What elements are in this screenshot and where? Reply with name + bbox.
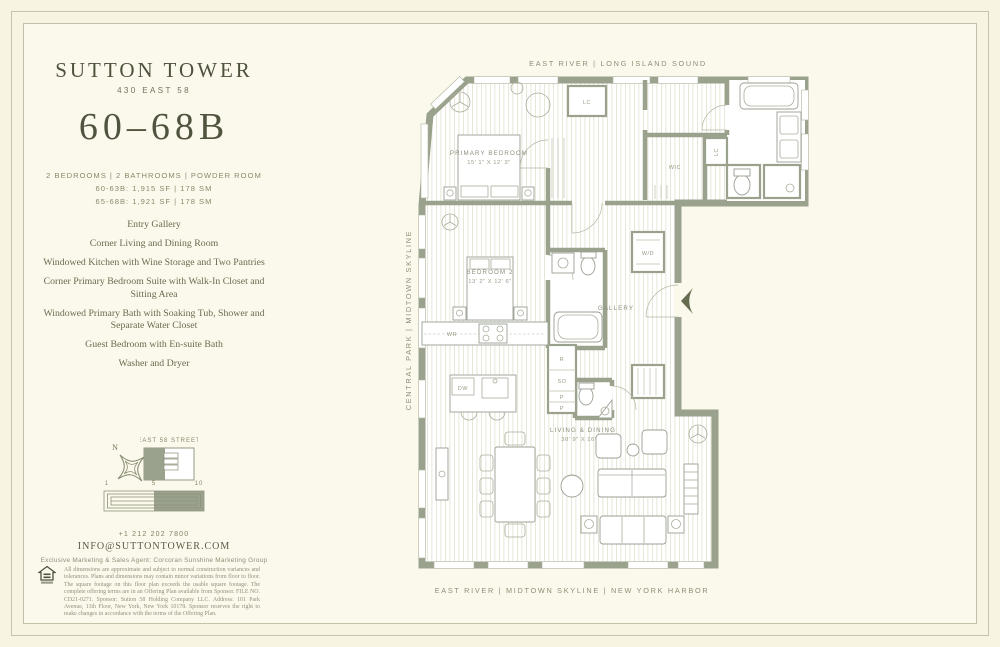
bedroom-2-dims: 13' 2" X 12' 6" [468,279,511,285]
feature-item: Corner Primary Bedroom Suite with Walk-I… [39,276,269,301]
shower-walls [764,165,800,198]
unit-config: 2 BEDROOMS | 2 BATHROOMS | POWDER ROOM [18,169,290,182]
wic-label: WIC [669,165,681,171]
scale-tick-5: 5 [152,481,156,487]
unit-area-1: 60-63B: 1,915 SF | 178 SM [18,182,290,195]
scale-tick-1: 1 [105,481,109,487]
pantry-label: P [560,406,564,412]
floor-plan: EAST RIVER | LONG ISLAND SOUND CENTRAL P… [400,50,900,605]
caption-left: CENTRAL PARK | MIDTOWN SKYLINE [404,230,413,410]
linen-closet-label: LC [583,100,591,106]
feature-item: Entry Gallery [39,219,269,232]
caption-top: EAST RIVER | LONG ISLAND SOUND [529,59,707,68]
refrigerator-label: R [560,357,565,363]
toilet-icon [579,387,593,405]
scale-tick-10: 10 [195,481,204,487]
compass-north-label: N [112,443,118,452]
feature-item: Windowed Primary Bath with Soaking Tub, … [39,308,269,333]
caption-bottom: EAST RIVER | MIDTOWN SKYLINE | NEW YORK … [435,586,710,595]
feature-list: Entry Gallery Corner Living and Dining R… [28,219,280,377]
bedroom-2-label: BEDROOM 2 [466,269,513,276]
sideboard [436,448,448,500]
scale-bar: 1 5 10 [98,477,210,513]
feature-item: Corner Living and Dining Room [39,238,269,251]
feature-item: Washer and Dryer [39,358,269,371]
speed-oven-label: SO [558,379,567,385]
floorplan-brochure-page: SUTTON TOWER 430 EAST 58 60–68B 2 BEDROO… [0,0,1000,647]
brand-address: 430 EAST 58 [38,86,270,95]
pantry-label: P [560,395,564,401]
equal-housing-logo-icon [38,565,56,585]
brand-title: SUTTON TOWER [38,58,270,83]
agent-line: Exclusive Marketing & Sales Agent: Corco… [18,557,290,564]
scale-bar-rings [104,491,204,511]
toilet-icon [734,175,750,195]
primary-bedroom-label: PRIMARY BEDROOM [450,150,528,157]
keyplan-core [164,453,178,470]
keyplan-unit-highlight [144,448,165,480]
keyplan: EAST 58 STREET [140,435,198,483]
legal-disclaimer: All dimensions are approximate and subje… [64,567,260,619]
feature-item: Windowed Kitchen with Wine Storage and T… [39,257,269,270]
armchair [596,434,621,458]
primary-bedroom-dims: 15' 1" X 12' 3" [467,160,510,166]
cooktop-icon [479,324,507,343]
dishwasher-label: DW [458,386,468,392]
feature-item: Guest Bedroom with En-suite Bath [39,339,269,352]
gallery-closet [632,365,664,398]
sofa [600,516,666,544]
wine-fridge-label: WR [447,332,457,338]
linen-closet-2-label: LC [714,148,720,156]
entry-opening [674,283,683,317]
contact-email: INFO@SUTTONTOWER.COM [38,541,270,552]
living-dining-label: LIVING & DINING [550,427,616,434]
dining-table [495,447,535,522]
round-table [627,444,639,456]
kitchen-island [450,375,516,412]
washer-dryer-label: W/D [642,251,654,257]
contact-phone: +1 212 202 7800 [38,531,270,538]
entry-arrow-icon [681,288,693,314]
unit-area-2: 65-68B: 1,921 SF | 178 SM [18,195,290,208]
toilet-icon [581,257,595,275]
unit-stats: 2 BEDROOMS | 2 BATHROOMS | POWDER ROOM 6… [18,169,290,208]
console-shelf [684,464,698,514]
keyplan-street-label: EAST 58 STREET [140,438,198,444]
armchair [642,430,667,454]
gallery-label: GALLERY [598,305,634,312]
unit-number: 60–68B [38,105,270,149]
